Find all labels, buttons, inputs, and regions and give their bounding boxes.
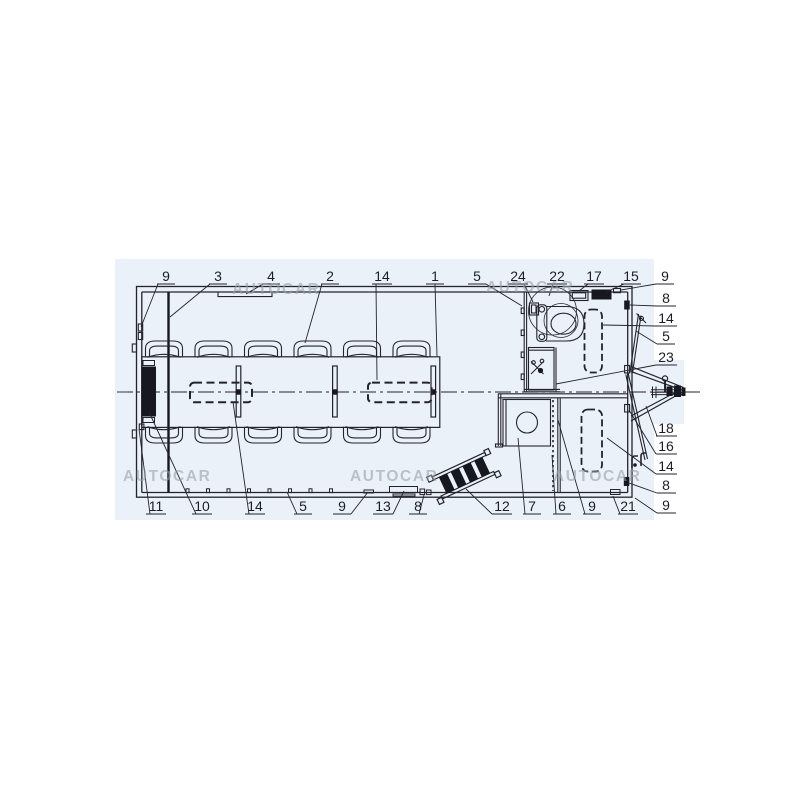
front-partition-wall — [167, 292, 169, 493]
callout-number: 5 — [662, 328, 670, 344]
callout-number: 18 — [658, 420, 674, 436]
callout-number: 6 — [558, 498, 566, 514]
watermark-text: AUTOCAR — [350, 468, 438, 485]
callout-number: 3 — [214, 268, 222, 284]
callout-number: 9 — [662, 497, 670, 513]
callout-number: 2 — [326, 268, 334, 284]
callout-number: 8 — [414, 498, 422, 514]
callout-number: 1 — [431, 268, 439, 284]
callout-number: 17 — [586, 268, 602, 284]
watermark-text: AUTOCAR — [486, 279, 574, 296]
callout-number: 12 — [494, 498, 510, 514]
callout-number: 16 — [658, 438, 674, 454]
callout-number: 23 — [658, 349, 674, 365]
watermark-text: AUTOCAR — [123, 468, 211, 485]
callout-number: 7 — [528, 498, 536, 514]
diagram-page: { "title": "trailer-floorplan-diagram", … — [0, 0, 800, 800]
callout-number: 9 — [162, 268, 170, 284]
callout-number: 9 — [588, 498, 596, 514]
watermark-text: AUTOCAR — [553, 468, 641, 485]
floorplan-svg: 9342141524221715981452318161489111014591… — [0, 0, 800, 800]
callout-number: 8 — [662, 290, 670, 306]
door-lock-8 — [624, 301, 630, 310]
callout-number: 10 — [194, 498, 210, 514]
callout-number: 11 — [149, 498, 164, 514]
callout-number: 9 — [661, 268, 669, 284]
watermark-text: AUTOCAR — [232, 281, 320, 298]
callout-number: 8 — [662, 477, 670, 493]
callout-number: 14 — [247, 498, 263, 514]
callout-number: 14 — [374, 268, 390, 284]
callout-number: 15 — [623, 268, 639, 284]
callout-number: 14 — [658, 458, 674, 474]
callout-number: 21 — [620, 498, 636, 514]
monitor — [142, 361, 157, 423]
callout-number: 5 — [299, 498, 307, 514]
callout-number: 9 — [338, 498, 346, 514]
callout-number: 13 — [375, 498, 391, 514]
callout-number: 14 — [658, 310, 674, 326]
callout-number: 5 — [473, 268, 481, 284]
